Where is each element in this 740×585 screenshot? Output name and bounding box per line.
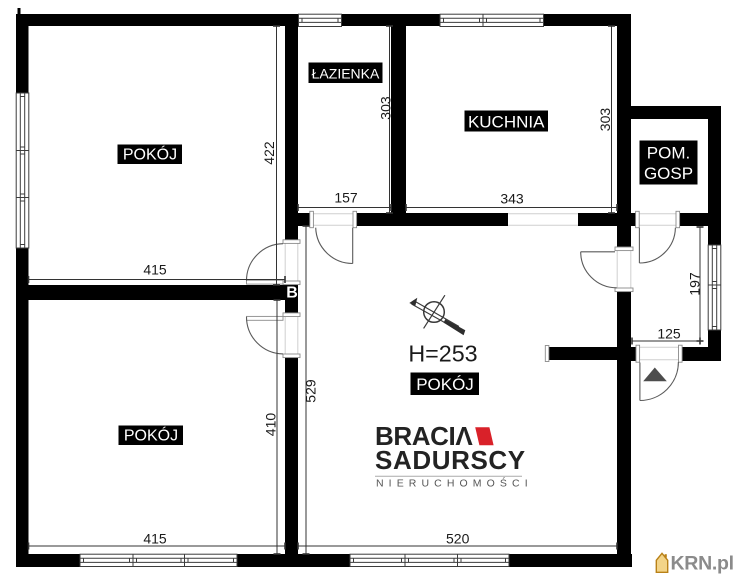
svg-text:ŁAZIENKA: ŁAZIENKA <box>312 66 380 82</box>
svg-text:157: 157 <box>334 190 358 206</box>
svg-text:343: 343 <box>500 191 524 207</box>
svg-text:422: 422 <box>261 141 277 165</box>
svg-text:B: B <box>286 285 298 302</box>
svg-text:NIERUCHOMOŚCI: NIERUCHOMOŚCI <box>376 477 533 490</box>
svg-text:GOSP: GOSP <box>644 164 693 183</box>
svg-text:SADURSCY: SADURSCY <box>375 445 526 475</box>
svg-text:415: 415 <box>143 531 167 547</box>
svg-text:197: 197 <box>687 272 703 296</box>
svg-text:125: 125 <box>657 326 681 342</box>
svg-text:H=253: H=253 <box>408 341 477 367</box>
svg-text:POKÓJ: POKÓJ <box>123 145 177 164</box>
svg-text:520: 520 <box>446 531 470 547</box>
svg-text:410: 410 <box>263 413 279 437</box>
svg-text:KUCHNIA: KUCHNIA <box>468 112 545 131</box>
svg-text:POM.: POM. <box>647 144 690 163</box>
svg-text:529: 529 <box>303 379 319 403</box>
svg-text:KRN.pl: KRN.pl <box>671 553 734 575</box>
svg-text:POKÓJ: POKÓJ <box>124 426 178 445</box>
svg-text:POKÓJ: POKÓJ <box>416 375 474 394</box>
svg-text:303: 303 <box>378 96 394 120</box>
svg-text:303: 303 <box>597 108 613 132</box>
svg-text:415: 415 <box>143 262 167 278</box>
